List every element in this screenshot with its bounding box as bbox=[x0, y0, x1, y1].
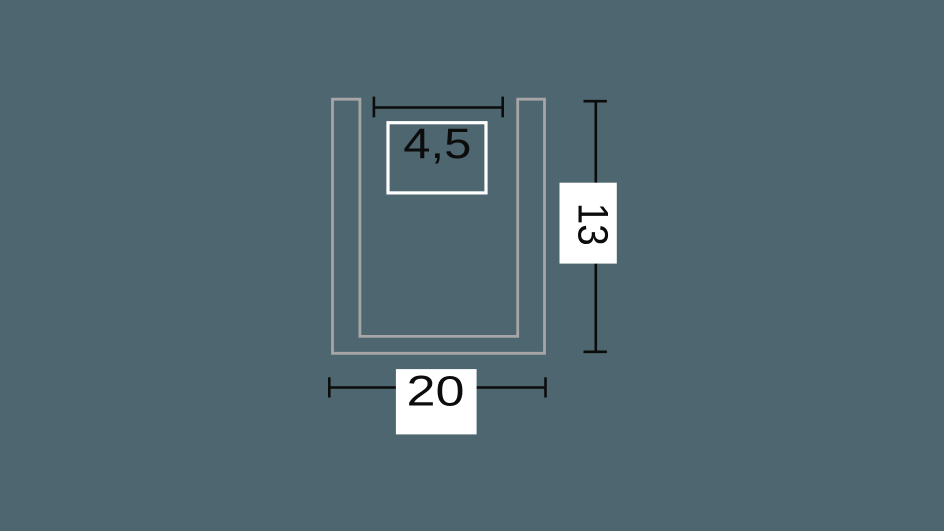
svg-text:4,5: 4,5 bbox=[403, 120, 471, 168]
svg-text:13: 13 bbox=[569, 203, 617, 246]
svg-text:20: 20 bbox=[407, 368, 465, 415]
